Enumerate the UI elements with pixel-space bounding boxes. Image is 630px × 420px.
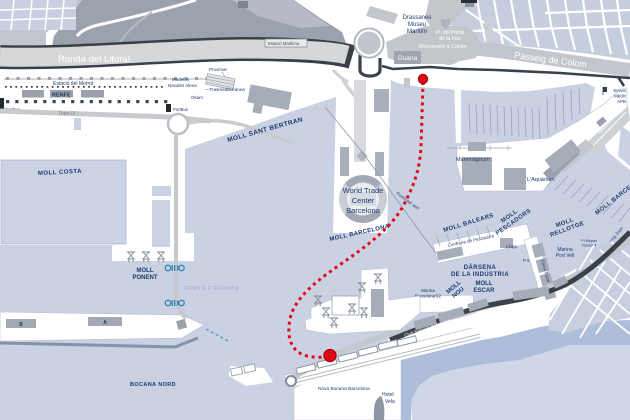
svg-text:Museu: Museu [408,22,426,28]
svg-text:Provimar: Provimar [209,67,228,72]
svg-text:Navales Alena: Navales Alena [168,83,197,88]
svg-text:Port Vell: Port Vell [556,253,575,259]
svg-text:PORTA D'EUROPA: PORTA D'EUROPA [185,286,239,292]
svg-text:Servei: Servei [613,88,626,93]
svg-text:de la Pau: de la Pau [439,36,460,42]
svg-text:Maremàgnum: Maremàgnum [456,157,490,163]
svg-text:RENFE: RENFE [52,93,71,99]
svg-text:Marítim: Marítim [407,29,427,35]
svg-text:Ronda del Litoral: Ronda del Litoral [58,54,130,65]
svg-text:Barcelona: Barcelona [346,206,381,215]
svg-text:Pl Miquel: Pl Miquel [581,239,597,243]
svg-text:Mèdic: Mèdic [614,94,627,99]
svg-text:ESCAR: ESCAR [473,288,495,294]
svg-text:World Trade: World Trade [343,186,384,195]
svg-text:DE LA INDÚSTRIA: DE LA INDÚSTRIA [451,271,509,278]
svg-text:Llotja: Llotja [506,244,517,249]
svg-text:Duana: Duana [398,55,418,62]
svg-text:Marina: Marina [421,288,435,293]
svg-text:Center: Center [352,196,375,205]
svg-text:DÀRSENA: DÀRSENA [464,264,497,271]
svg-text:A: A [103,320,107,326]
svg-text:Drassanes: Drassanes [403,15,432,21]
svg-text:MOLL: MOLL [476,281,493,287]
svg-text:P-5: P-5 [523,258,530,263]
svg-text:Hotel: Hotel [382,392,394,398]
svg-text:Modelos: Modelos [172,77,190,82]
svg-text:APB: APB [617,99,626,104]
svg-text:Tram IV: Tram IV [58,111,76,117]
svg-text:MOLL: MOLL [137,268,154,274]
svg-text:Nova Bocana Barcelona: Nova Bocana Barcelona [318,386,370,392]
svg-text:B: B [19,322,23,328]
svg-text:Vela: Vela [385,399,395,405]
svg-text:PONENT: PONENT [132,275,157,281]
svg-text:Estació Marítima: Estació Marítima [268,41,300,46]
svg-text:Monument a Colom: Monument a Colom [419,44,467,50]
svg-text:PortBus: PortBus [173,107,188,112]
svg-text:Okam: Okam [191,95,203,100]
svg-text:BOCANA NORD: BOCANA NORD [130,382,176,388]
svg-text:—Trasmediterránea: —Trasmediterránea [205,87,245,92]
